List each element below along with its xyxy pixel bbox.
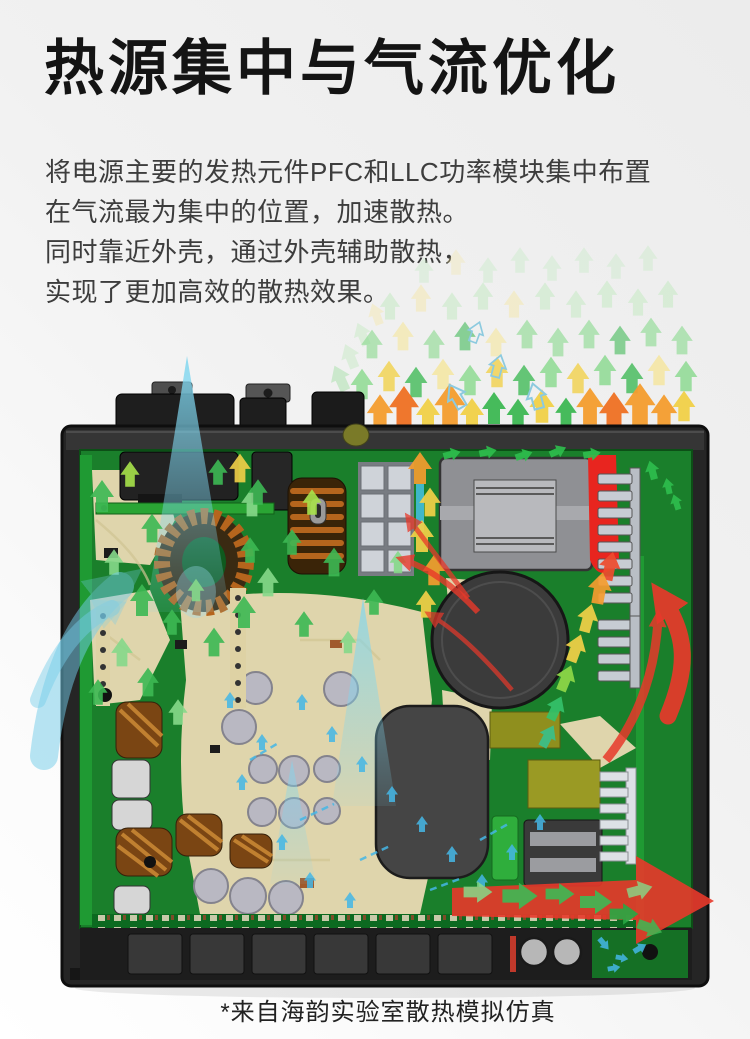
plume-arrows [325,245,697,432]
psu-thermal-page: 热源集中与气流优化 将电源主要的发热元件PFC和LLC功率模块集中布置 在气流最… [0,0,750,1039]
bulk-capacitor [432,572,568,708]
modular-connector-bay [80,928,692,980]
psu-thermal-illustration [0,0,750,1039]
figure-caption: *来自海韵实验室散热模拟仿真 [0,992,750,1027]
output-transformer [524,820,602,886]
main-transformer [440,458,592,570]
film-cap-2 [528,760,600,808]
olive-knob [343,424,369,446]
